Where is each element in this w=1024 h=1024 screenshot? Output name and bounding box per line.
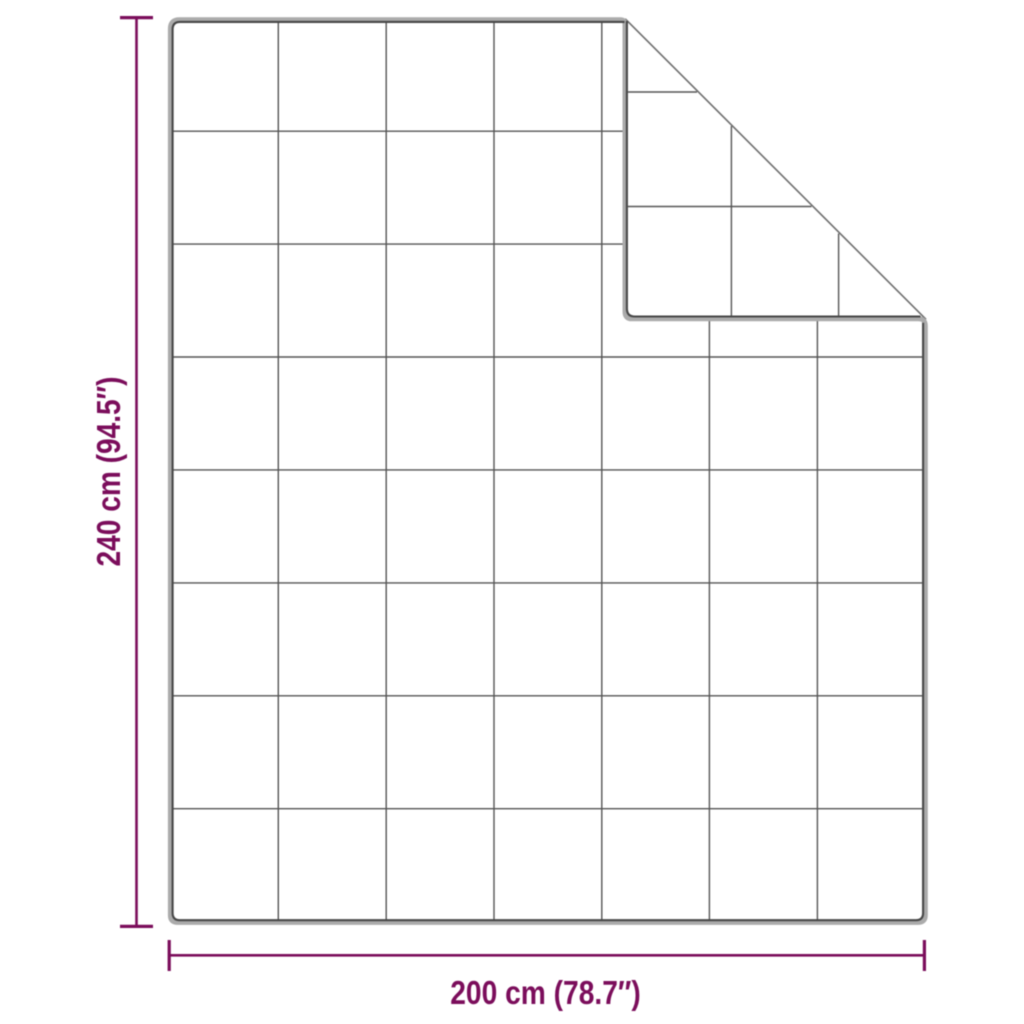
- svg-text:240 cm (94.5″): 240 cm (94.5″): [91, 377, 128, 567]
- svg-text:200 cm (78.7″): 200 cm (78.7″): [450, 975, 641, 1012]
